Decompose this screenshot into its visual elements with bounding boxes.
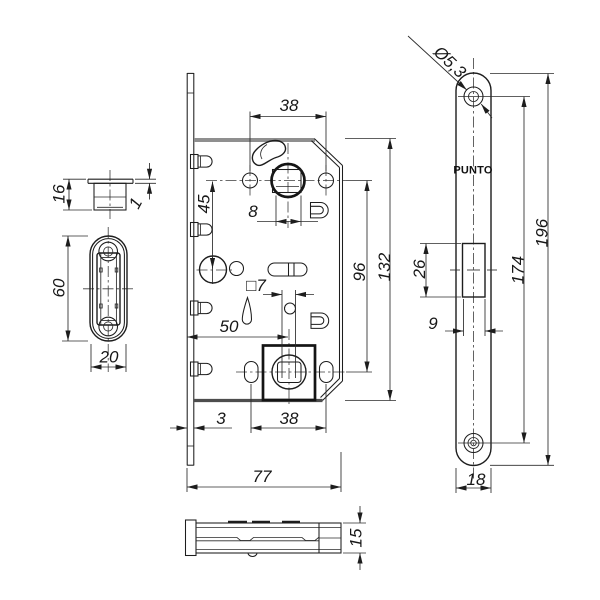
- dim-case-depth: 77: [253, 467, 272, 486]
- spring-clip-top: [311, 203, 329, 218]
- spring-clip-bottom: [311, 313, 329, 328]
- brand-logo: PUNTO: [453, 165, 493, 177]
- dim-latch-flange: 1: [125, 195, 146, 212]
- dim-plate-width: 18: [467, 470, 486, 489]
- lock-technical-drawing: 16 1 60 20: [0, 0, 600, 600]
- stop-hole: [285, 303, 296, 314]
- dim-magnet-offset: 45: [195, 194, 214, 213]
- latch-lever: [252, 141, 285, 166]
- dim-screw-hole-distance: 174: [509, 256, 528, 284]
- dim-backset: 50: [220, 317, 239, 336]
- bottom-view: 15: [186, 506, 367, 570]
- dim-wc-square: □7: [246, 276, 266, 295]
- dim-follower-distance: 96: [350, 262, 369, 281]
- slider-slot: [268, 263, 307, 276]
- dim-cutout-height: 26: [410, 259, 429, 279]
- lock-body-view: 38 8 45 96 132 50 □7 3: [170, 73, 396, 492]
- dim-strike-width: 20: [99, 348, 119, 367]
- strike-plate-view: 60 20: [50, 236, 128, 372]
- pin-hole: [230, 262, 244, 276]
- dim-faceplate-thickness: 3: [216, 409, 226, 428]
- magnet-hole: [200, 256, 227, 283]
- dim-latch-height: 16: [50, 184, 69, 203]
- dim-case-thickness: 15: [347, 528, 366, 547]
- dim-strike-height: 60: [50, 278, 69, 297]
- dim-spindle-square: 8: [248, 202, 258, 221]
- dim-cutout-width: 9: [428, 314, 438, 333]
- dim-case-height: 132: [375, 252, 394, 281]
- spring-drop: [242, 298, 251, 325]
- dim-plate-length: 196: [533, 218, 552, 247]
- dim-bottom-hole-spacing: 38: [280, 409, 299, 428]
- dim-top-hole-spacing: 38: [280, 96, 299, 115]
- drawing-page: 16 1 60 20: [0, 0, 600, 600]
- latch-top-view: 16 1: [50, 163, 157, 212]
- faceplate-view: PUNTO Ø5,3 174 196 26 9 18: [408, 36, 554, 493]
